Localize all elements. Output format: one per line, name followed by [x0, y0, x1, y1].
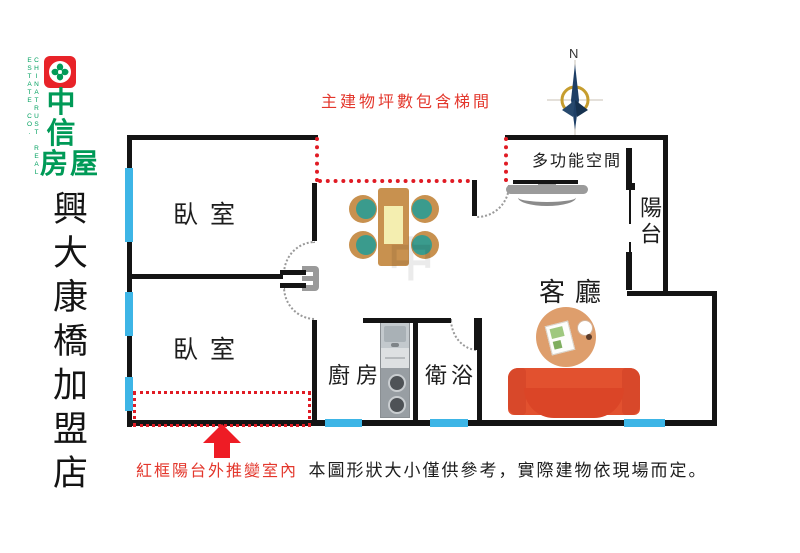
dining-chair — [411, 195, 439, 223]
label-multi: 多功能空間 — [522, 147, 632, 171]
window-bath-bottom — [430, 419, 468, 427]
balcony-slider-glass-1 — [629, 190, 631, 224]
watermark-glyph: 中 — [388, 224, 434, 290]
balcony-slider-bottom — [626, 252, 632, 290]
magazine — [545, 321, 576, 356]
red-dash-top-horizontal — [318, 179, 470, 183]
window-bedroom2-left-lower — [125, 377, 133, 411]
bathroom-door-leaf — [474, 318, 478, 350]
wall-kitchen-top — [363, 318, 451, 323]
window-bedroom2-left-upper — [125, 292, 133, 336]
sofa — [508, 368, 640, 418]
label-bedroom2: 臥室 — [150, 330, 270, 366]
floorplan-page: CHINATRUST REAL ESTATE CO. 中 信 房屋 興大康橋加盟… — [0, 0, 800, 553]
wall-top-bedroom1 — [127, 135, 318, 140]
logo-white-circle — [49, 61, 71, 83]
chinatrust-logo-icon — [44, 56, 76, 88]
balcony-slider-nub — [626, 183, 635, 190]
bottom-note-black: 本圖形狀大小僅供參考，實際建物依現場而定。 — [308, 461, 707, 480]
wall-balcony-bottom — [627, 291, 717, 296]
wall-between-bedrooms — [127, 274, 283, 279]
bedroom2-door-arc — [283, 287, 315, 320]
label-kitchen: 廚房 — [318, 358, 394, 390]
red-dash-left-vertical — [315, 137, 319, 182]
company-en-vertical: CHINATRUST REAL ESTATE CO. — [26, 57, 40, 187]
logo-zh-char-2: 信 — [44, 119, 78, 150]
branding-sidebar: CHINATRUST REAL ESTATE CO. 中 信 房屋 興大康橋加盟… — [0, 0, 125, 553]
label-bedroom1: 臥室 — [150, 195, 270, 231]
window-living-bottom — [624, 419, 665, 427]
red-dash-bedroom2-box — [133, 391, 311, 427]
compass-n-label: N — [569, 46, 578, 61]
label-balcony: 陽台 — [633, 192, 665, 252]
wall-bedroom2-right — [312, 320, 317, 424]
store-name-vertical: 興大康橋加盟店 — [42, 190, 93, 520]
dining-chair — [349, 231, 377, 259]
bottom-note-red: 紅框陽台外推變室內 — [136, 463, 298, 480]
top-note: 主建物坪數包含梯間 — [321, 88, 492, 112]
kitchen-sink — [381, 323, 409, 348]
bench — [506, 185, 588, 205]
logo-zh-char-1: 中 — [44, 88, 78, 119]
wall-outer-right — [712, 291, 717, 426]
bedroom1-door-leaf — [280, 270, 306, 275]
window-kitchen-bottom — [325, 419, 362, 427]
wall-top-right — [505, 135, 668, 140]
dining-chair — [349, 195, 377, 223]
window-bedroom1-left — [125, 168, 133, 242]
label-bathroom: 衛浴 — [416, 358, 486, 390]
logo-zh-chars-34: 房屋 — [40, 149, 120, 179]
bottom-notes: 紅框陽台外推變室內 本圖形狀大小僅供參考，實際建物依現場而定。 — [136, 456, 707, 481]
wall-bedroom1-right — [312, 183, 317, 241]
label-living: 客廳 — [528, 272, 622, 309]
up-arrow-icon — [202, 424, 242, 458]
red-dash-right-vertical — [504, 137, 508, 182]
north-compass-icon — [547, 58, 603, 136]
bedroom2-door-leaf — [280, 283, 306, 288]
living-rug — [536, 307, 596, 367]
cup-dot — [586, 334, 592, 340]
wall-multi-shelf — [513, 180, 578, 184]
wall-stub-dining-right — [472, 180, 477, 216]
